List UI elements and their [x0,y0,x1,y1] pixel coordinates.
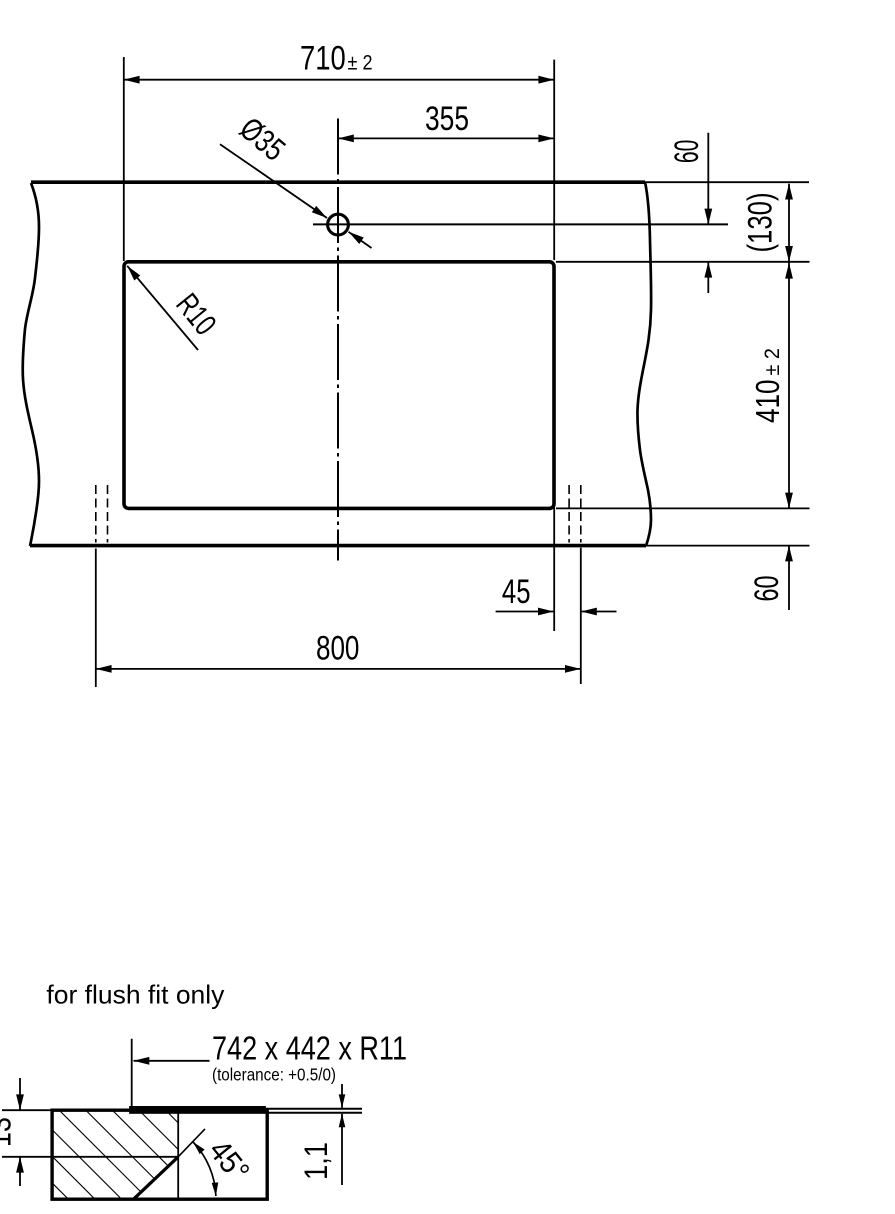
svg-text:(130): (130) [742,193,780,253]
svg-text:60: 60 [748,576,786,602]
svg-text:± 2: ± 2 [761,348,784,376]
svg-text:60: 60 [668,140,706,164]
svg-text:1,1: 1,1 [298,1142,334,1180]
svg-text:± 2: ± 2 [348,51,373,74]
svg-text:13: 13 [0,1117,18,1147]
svg-text:742 x 442 x R11: 742 x 442 x R11 [212,1029,407,1066]
svg-text:355: 355 [425,100,469,138]
svg-text:410: 410 [750,380,787,424]
svg-text:800: 800 [316,629,360,667]
svg-text:(tolerance: +0.5/0): (tolerance: +0.5/0) [212,1065,336,1085]
svg-text:710: 710 [300,40,346,78]
svg-text:45: 45 [502,573,531,611]
svg-text:for flush fit only: for flush fit only [46,980,224,1010]
